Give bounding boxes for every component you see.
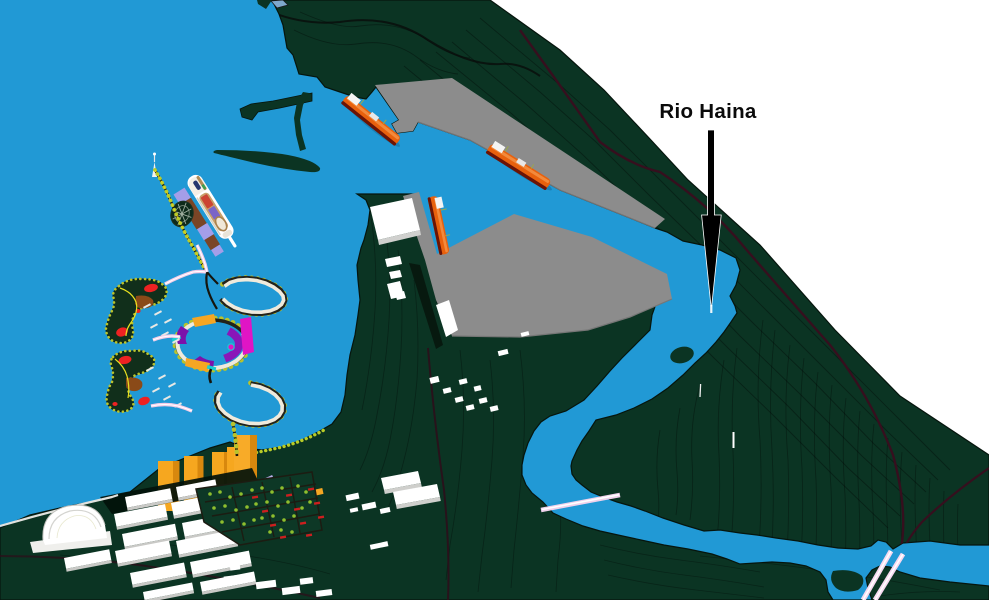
svg-text:Rio Haina: Rio Haina (659, 100, 757, 123)
